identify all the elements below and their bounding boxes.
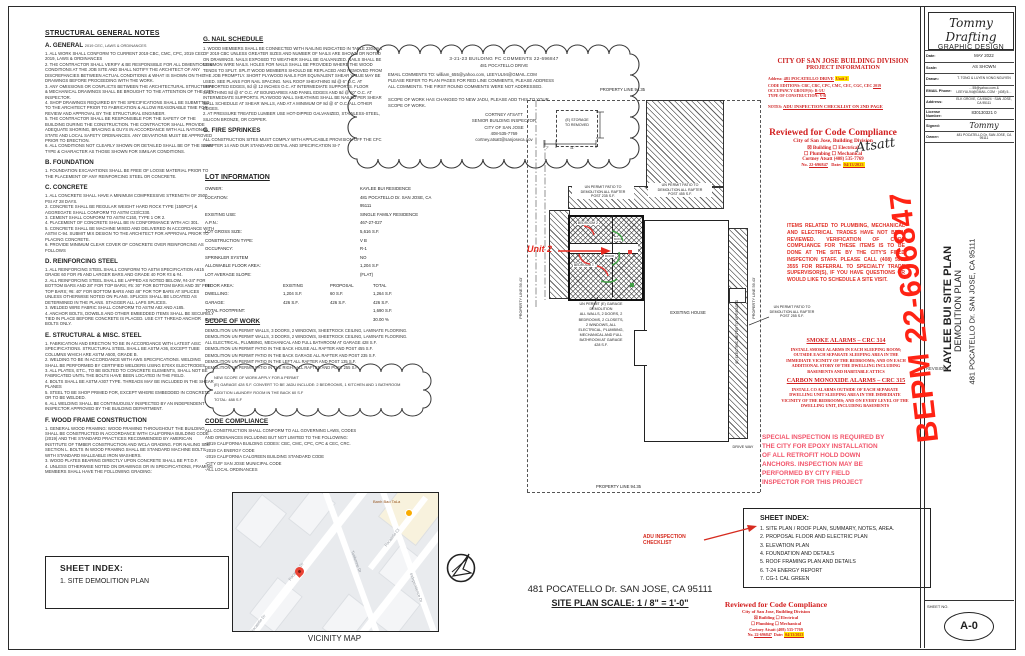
- door-label: DOOR: [613, 237, 624, 241]
- floor-area-row: TOTAL FOOTPRINT: 1,690 S.F.: [205, 307, 440, 316]
- existing-house: [644, 220, 729, 442]
- property-line-top: [527, 100, 760, 101]
- map-poi-icon: [405, 509, 413, 517]
- drive-way-label: DRIVE WAY: [728, 445, 758, 449]
- floor-area-cell: 1,204 S.F.: [283, 290, 330, 299]
- pc-comments-header: 3-21-23 BUILDING PC COMMENTS 22-696847: [388, 56, 620, 63]
- map-poi-label: Banh Bao TaLa: [373, 499, 400, 504]
- title-block-row-label: Drawn:: [924, 77, 954, 81]
- title-block-row: Owner: 481 POCATELLO Dr. SAN JOSE, CA 95…: [924, 131, 1014, 143]
- lot-row-label: OWNER:: [205, 185, 360, 194]
- title-block-row: Scale: AS SHOWN: [924, 62, 1014, 74]
- architectural-sheet: STRUCTURAL GENERAL NOTES A. GENERAL 2019…: [0, 0, 1025, 656]
- lot-row-value: 1,204 S.F: [360, 262, 440, 271]
- pc-comments-address: 481 POCATELLO DRIVE: [388, 63, 620, 69]
- title-block-row-label: Owner:: [924, 135, 954, 139]
- floor-area-cell: PROPOSAL: [330, 282, 373, 291]
- nail-schedule-block: G. NAIL SCHEDULE 1. WOOD MEMBERS SHALL B…: [203, 36, 385, 148]
- floor-area-cell: TOTAL: [373, 282, 440, 291]
- sheet-number: A-0: [944, 612, 994, 641]
- title-block-row: License Number: 830130321 0: [924, 108, 1014, 120]
- title-block-row-value: MAY 2022: [954, 53, 1014, 60]
- floor-area-cell: 426 S.F.: [373, 299, 440, 308]
- floor-area-cell: [283, 307, 330, 316]
- vicinity-map-caption: VICINITY MAP: [232, 634, 437, 643]
- lot-row-label: LOT GROSS SIZE:: [205, 228, 360, 237]
- lot-row: OCCUPANCY: R-1: [205, 245, 440, 254]
- lot-row: OWNER: KAYLEE BUI RESIDENCE: [205, 185, 440, 194]
- notes-section: E. STRUCTURAL & MISC. STEEL 1. FABRICATI…: [45, 332, 215, 412]
- patio-255-label: UN PERMIT PATIO TO DEMOLITION ALL RAFTER…: [768, 305, 816, 319]
- title-block-row: Drawn: T. TONG & LUYEN VONG NGUYEN: [924, 73, 1014, 85]
- smoke-alarms-heading: SMOKE ALARMS – CRC 314: [790, 338, 902, 344]
- stamp-org: City of San Jose, Building Division: [716, 609, 836, 614]
- title-block-row-value: T. TONG & LUYEN VONG NGUYEN: [954, 76, 1014, 82]
- code-editions-label: CODE EDITIONS: CBC, CRC, CPC, CMC, CEC, …: [768, 84, 872, 88]
- bedroom2-label: BEDROOM 2: [577, 221, 599, 225]
- lot-row: LOT GROSS SIZE: 5,616 S.F.: [205, 228, 440, 237]
- lot-row: LOT AVERAGE SLOPE: (FLAT): [205, 271, 440, 280]
- patio-left-hatch: [549, 210, 570, 299]
- title-block-row-label: Signed:: [924, 124, 954, 128]
- property-line-bottom-label: PROPERTY LINE 94.35: [596, 484, 641, 489]
- notes-section: A. GENERAL 2019 CEC, LAWS & ORDINANCES 1…: [45, 42, 215, 154]
- lot-row: SPRINKLER SYSTEM NO: [205, 254, 440, 263]
- title-block-row: EMAIL Phone: …55@yahoo.com & LEEYUL94@GM…: [924, 85, 1014, 97]
- property-line-top-label: PROPERTY LINE 94.35: [600, 87, 645, 92]
- existing-house-label: EXISTING HOUSE: [658, 310, 718, 315]
- stamp-no-label: No.: [801, 162, 807, 167]
- notes-section-heading: D. REINFORCING STEEL: [45, 258, 215, 265]
- property-line-bottom: [527, 492, 760, 493]
- floor-area-cell: EXISTING: [283, 282, 330, 291]
- garage-demolition-area: [568, 215, 644, 301]
- title-block-row-value: ELK GROVE, CA 95624 · SAN JOSE, CA 95111: [954, 97, 1014, 107]
- sheet-no-divider: [924, 600, 1014, 601]
- lot-row-value: 5,616 S.F.: [360, 228, 440, 237]
- title-block-row-label: Scale:: [924, 66, 954, 70]
- title-block-row: Date: MAY 2022: [924, 50, 1014, 62]
- lot-row-label: LOCATION:: [205, 194, 360, 211]
- section-heading-text: B. FOUNDATION: [45, 159, 94, 166]
- lot-row-label: OCCUPANCY:: [205, 245, 360, 254]
- sheet-no-label: SHEET NO.: [927, 604, 949, 609]
- floor-area-row: DWELLING: 1,204 S.F. 60 S.F. 1,264 S.F.: [205, 290, 440, 299]
- structural-notes-title: STRUCTURAL GENERAL NOTES: [45, 30, 215, 37]
- title-block-row-label: License Number:: [924, 110, 954, 118]
- door-label: DOOR: [604, 254, 615, 258]
- existing-house-notch: [634, 330, 647, 366]
- project-info-subtitle: PROJECT INFORMATION: [768, 65, 918, 71]
- electric-meter-label: (E) ELECTRIC METER TO UPGRADED: [735, 277, 739, 387]
- notes-section-heading: C. CONCRETE: [45, 184, 215, 191]
- garage-hallway: [570, 243, 638, 254]
- notes-section-body: 1. ALL CONCRETE SHALL HAVE A MINIMUM COM…: [45, 193, 215, 253]
- section-heading-text: C. CONCRETE: [45, 184, 88, 191]
- bedroom1-label: BEDROOM 1: [573, 263, 595, 267]
- dim-7ft: 7': [546, 146, 549, 150]
- unit2-callout: Unit 2: [527, 244, 552, 254]
- stamp-date-label: Date:: [831, 162, 841, 167]
- nail-schedule-title: G. NAIL SCHEDULE: [203, 36, 385, 43]
- title-block-row-label: EMAIL Phone:: [924, 89, 954, 93]
- code-compliance-title: CODE COMPLIANCE: [205, 418, 423, 425]
- lot-row-label: A.P.N.:: [205, 219, 360, 228]
- code-compliance-stamp-bottom: Reviewed for Code Compliance City of San…: [716, 600, 836, 637]
- title-block-row-value: 830130321 0: [954, 110, 1014, 117]
- lot-row-value: 467-27-027: [360, 219, 440, 228]
- title-block-row-label: Date:: [924, 54, 954, 58]
- notes-sections: A. GENERAL 2019 CEC, LAWS & ORDINANCES 1…: [45, 42, 215, 474]
- special-inspection-note: SPECIAL INSPECTION IS REQUIRED BY THE CI…: [762, 434, 888, 488]
- patio-235-label: UN PERMIT PATIO TO DEMOLITION ALL RAFTER…: [572, 185, 634, 199]
- notes-section: D. REINFORCING STEEL 1. ALL REINFORCING …: [45, 258, 215, 327]
- property-line-right: [760, 100, 761, 492]
- lot-row-value: NO: [360, 254, 440, 263]
- plan-scale: SITE PLAN SCALE: 1 / 8" = 1'-0": [515, 598, 725, 608]
- notes-section: B. FOUNDATION 1. FOUNDATION EXCAVATIONS …: [45, 159, 215, 179]
- stamp-date-label: Date:: [774, 632, 783, 637]
- floor-area-cell: 426 S.F.: [283, 299, 330, 308]
- garage-demolition-note: UN PERMIT (E) GARAGE DEMOLITION ALL WALL…: [570, 302, 632, 349]
- notes-section-body: 1. FOUNDATION EXCAVATIONS SHALL BE FREE …: [45, 168, 215, 179]
- adu-checklist-callout: ADU INSPECTION CHECKLIST: [643, 534, 705, 546]
- stamp-date-value: 04/13/2023: [784, 632, 804, 638]
- lot-information-block: LOT INFORMATION OWNER: KAYLEE BUI RESIDE…: [205, 174, 440, 325]
- property-line-left-label: PROPERTY LINE 59.43': [519, 243, 523, 353]
- title-block-row: Address: ELK GROVE, CA 95624 · SAN JOSE,…: [924, 96, 1014, 108]
- sheet-index-right-items: 1. SITE PLAN / ROOF PLAN, SUMMARY, NOTES…: [760, 525, 930, 583]
- address-label: Address:: [768, 77, 783, 81]
- lot-row: LOCATION: 481 POCATELLO Dr. SAN JOSE, CA…: [205, 194, 440, 211]
- floor-area-cell: 426 S.F.: [330, 299, 373, 308]
- stamp-date-value: 04/13/2023: [843, 162, 865, 168]
- notes-section-heading: E. STRUCTURAL & MISC. STEEL: [45, 332, 215, 339]
- lot-row-label: CONSTRUCTION TYPE:: [205, 237, 360, 246]
- sheet-index-right-box: SHEET INDEX: 1. SITE PLAN / ROOF PLAN, S…: [743, 508, 931, 588]
- lot-row: CONSTRUCTION TYPE: V B: [205, 237, 440, 246]
- address-value: 481 POCATELLO DRIVE: [784, 76, 834, 82]
- section-heading-text: E. STRUCTURAL & MISC. STEEL: [45, 332, 141, 339]
- title-block-rule: [924, 142, 1014, 143]
- l ot-rows: OWNER: KAYLEE BUI RESIDENCE LOCATION: 48…: [205, 185, 440, 280]
- pc-comments-body: EMAIL COMMENTS TO: william_655@yahoo.com…: [388, 72, 620, 109]
- sheet-index-left-box: SHEET INDEX: 1. SITE DEMOLITION PLAN: [45, 556, 229, 609]
- scope-of-work-title: SCOPE OF WORK: [205, 318, 423, 325]
- project-address-vertical: 481 POCATELLO Dr. SAN JOSE, CA 95111: [968, 152, 977, 472]
- lot-row: EXISTING USE: SINGLE FAMILY RESIDENCE: [205, 211, 440, 220]
- stamp-no-value: 22-696847: [809, 162, 828, 168]
- unit-value: Unit 2: [835, 76, 849, 81]
- scope-of-work-body: DEMOLITION UN PERMIT WALLS, 3 DOORS, 2 W…: [205, 328, 423, 371]
- floor-area-cell: FLOOR AREA:: [205, 282, 283, 291]
- notes-section: F. WOOD FRAME CONSTRUCTION 1. GENERAL WO…: [45, 417, 215, 475]
- vicinity-map: Pocatello Dr Pocatello Dr Pocatello Ct T…: [232, 492, 439, 632]
- nail-schedule-body: 1. WOOD MEMBERS SHALL BE CONNECTED WITH …: [203, 46, 385, 122]
- title-block-rows: Date: MAY 2022 Scale: AS SHOWN Drawn: T.…: [924, 50, 1014, 143]
- lot-information-title: LOT INFORMATION: [205, 174, 440, 181]
- occupancy-row: OCCUPANCY GROUP(S): R-3/U: [768, 89, 918, 93]
- notes-value: ADU INSPECTION CHECKLIST ON 2ND PAGE: [783, 104, 883, 110]
- lot-row-value: 481 POCATELLO Dr. SAN JOSE, CA 95111: [360, 194, 440, 211]
- construction-type-row: TYPE OF CONSTRUCTION: V-B: [768, 94, 918, 98]
- property-line-right-label: PROPERTY LINE 59.43': [752, 243, 756, 353]
- drafter-logo-box: Tommy Drafting GRAPHIC DESIGN: [928, 12, 1014, 50]
- sheet-index-right-title: SHEET INDEX:: [760, 515, 930, 522]
- floor-area-row: GARAGE: 426 S.F. 426 S.F. 426 S.F.: [205, 299, 440, 308]
- project-info-address-row: Address: 481 POCATELLO DRIVE Unit 2: [768, 76, 918, 81]
- notes-section-heading: A. GENERAL 2019 CEC, LAWS & ORDINANCES: [45, 42, 215, 49]
- lot-row-value: KAYLEE BUI RESIDENCE: [360, 185, 440, 194]
- smoke-alarms-body: INSTALL SMOKE ALARMS IN EACH SLEEPING RO…: [784, 347, 908, 374]
- lot-row-value: (FLAT): [360, 271, 440, 280]
- code-editions-row: CODE EDITIONS: CBC, CRC, CPC, CMC, CEC, …: [768, 84, 918, 88]
- code-editions-year: 2019: [873, 84, 881, 89]
- fire-sprinkles-title: G. FIRE SPRINKES: [203, 127, 385, 134]
- scope-cloud-text: NEW SCOPE OF WORK APPLY FOR A PERMIT (E)…: [214, 374, 420, 404]
- construction-type-value: V-B: [820, 94, 826, 99]
- title-block-row-value: …55@yahoo.com & LEEYUL94@GMAIL.COM · (40…: [954, 86, 1014, 96]
- lot-row-value: R-1: [360, 245, 440, 254]
- site-address: 481 POCATELLO Dr. SAN JOSE, CA 95111: [515, 584, 725, 595]
- code-compliance-body: ALL CONSTRUCTION SHALL CONFORM TO ALL GO…: [205, 428, 423, 474]
- floor-area-row: FLOOR AREA: EXISTING PROPOSAL TOTAL: [205, 282, 440, 291]
- stamp-no-value: 22-696847: [754, 632, 771, 638]
- notes-section-body: 1. ALL WORK SHALL CONFORM TO CURRENT 201…: [45, 51, 215, 154]
- project-info-block: CITY OF SAN JOSE BUILDING DIVISION PROJE…: [768, 58, 918, 109]
- floor-area-cell: [330, 307, 373, 316]
- title-block-row-label: Address:: [924, 100, 954, 104]
- fire-sprinkles-body: ALL CONSTRUCTION SITES MUST COMPLY WITH …: [203, 137, 385, 148]
- scope-of-work-block: SCOPE OF WORK DEMOLITION UN PERMIT WALLS…: [205, 318, 423, 371]
- notes-section-body: 1. FABRICATION AND ERECTION TO BE IN ACC…: [45, 341, 215, 412]
- occupancy-label: OCCUPANCY GROUP(S):: [768, 89, 814, 93]
- title-block-row: Signed: Tommy: [924, 119, 1014, 131]
- patio-455-label: UN PERMIT PATIO TO DEMOLITION ALL RAFTER…: [648, 183, 712, 197]
- lot-row-value: SINGLE FAMILY RESIDENCE: [360, 211, 440, 220]
- notes-label: NOTES:: [768, 105, 782, 109]
- section-heading-text: A. GENERAL: [45, 42, 83, 49]
- storage-box: (E) STORAGE TO REMOVED: [556, 110, 598, 147]
- co-alarms-heading: CARBON MONOXIDE ALARMS – CRC 315: [782, 378, 910, 384]
- floor-area-cell: 60 S.F.: [330, 290, 373, 299]
- floor-area-cell: 1,264 S.F.: [373, 290, 440, 299]
- floor-area-cell: GARAGE:: [205, 299, 283, 308]
- notes-row: NOTES: ADU INSPECTION CHECKLIST ON 2ND P…: [768, 104, 918, 109]
- floor-area-cell: TOTAL FOOTPRINT:: [205, 307, 283, 316]
- notes-section: C. CONCRETE 1. ALL CONCRETE SHALL HAVE A…: [45, 184, 215, 253]
- construction-type-label: TYPE OF CONSTRUCTION:: [768, 94, 819, 98]
- notes-section-heading: B. FOUNDATION: [45, 159, 215, 166]
- lot-row: ALLOWABLE FLOOR AREA: 1,204 S.F: [205, 262, 440, 271]
- lot-row-label: ALLOWABLE FLOOR AREA:: [205, 262, 360, 271]
- sheet-title-vertical: DEMOLITION PLAN: [953, 151, 963, 471]
- lot-row-label: EXISTING USE:: [205, 211, 360, 220]
- sheet-index-left-title: SHEET INDEX:: [60, 563, 228, 573]
- lot-row-label: LOT AVERAGE SLOPE:: [205, 271, 360, 280]
- lot-row: A.P.N.: 467-27-027: [205, 219, 440, 228]
- title-block-row-value: AS SHOWN: [954, 64, 1014, 71]
- project-info-title: CITY OF SAN JOSE BUILDING DIVISION: [768, 58, 918, 65]
- code-compliance-block: CODE COMPLIANCE ALL CONSTRUCTION SHALL C…: [205, 418, 423, 474]
- dim-11ft: 11': [570, 146, 574, 150]
- floor-area-cell: 1,690 S.F.: [373, 307, 440, 316]
- stamp-no-date: No. 22-696847 Date: 04/13/2023: [716, 632, 836, 637]
- section-heading-text: F. WOOD FRAME CONSTRUCTION: [45, 417, 147, 424]
- sheet-index-left-item: 1. SITE DEMOLITION PLAN: [60, 578, 228, 585]
- section-heading-note: 2019 CEC, LAWS & ORDINANCES: [85, 43, 147, 48]
- floor-area-cell: DWELLING:: [205, 290, 283, 299]
- drafter-name: Tommy Drafting: [929, 16, 1013, 44]
- property-line-left: [527, 100, 528, 492]
- patio-455-hatch: [646, 100, 724, 188]
- lot-row-value: V B: [360, 237, 440, 246]
- lot-row-label: SPRINKLER SYSTEM: [205, 254, 360, 263]
- title-block-row-value: Tommy: [954, 120, 1014, 131]
- notes-section-heading: F. WOOD FRAME CONSTRUCTION: [45, 417, 215, 424]
- structural-general-notes: STRUCTURAL GENERAL NOTES A. GENERAL 2019…: [45, 30, 215, 474]
- co-alarms-body: INSTALL CO ALARMS OUTSIDE OF EACH SEPARA…: [780, 387, 910, 409]
- title-block-row-value: 481 POCATELLO Dr. SAN JOSE, CA 95111: [954, 133, 1014, 143]
- notes-section-body: 1. ALL REINFORCING STEEL SHALL CONFORM T…: [45, 267, 215, 327]
- stamp-no-label: No.: [748, 632, 754, 637]
- notes-section-body: 1. GENERAL WOOD FRAMING: WOOD FRAMING TH…: [45, 426, 215, 475]
- map-block: [235, 494, 287, 548]
- section-heading-text: D. REINFORCING STEEL: [45, 258, 118, 265]
- stamp-title: Reviewed for Code Compliance: [716, 600, 836, 609]
